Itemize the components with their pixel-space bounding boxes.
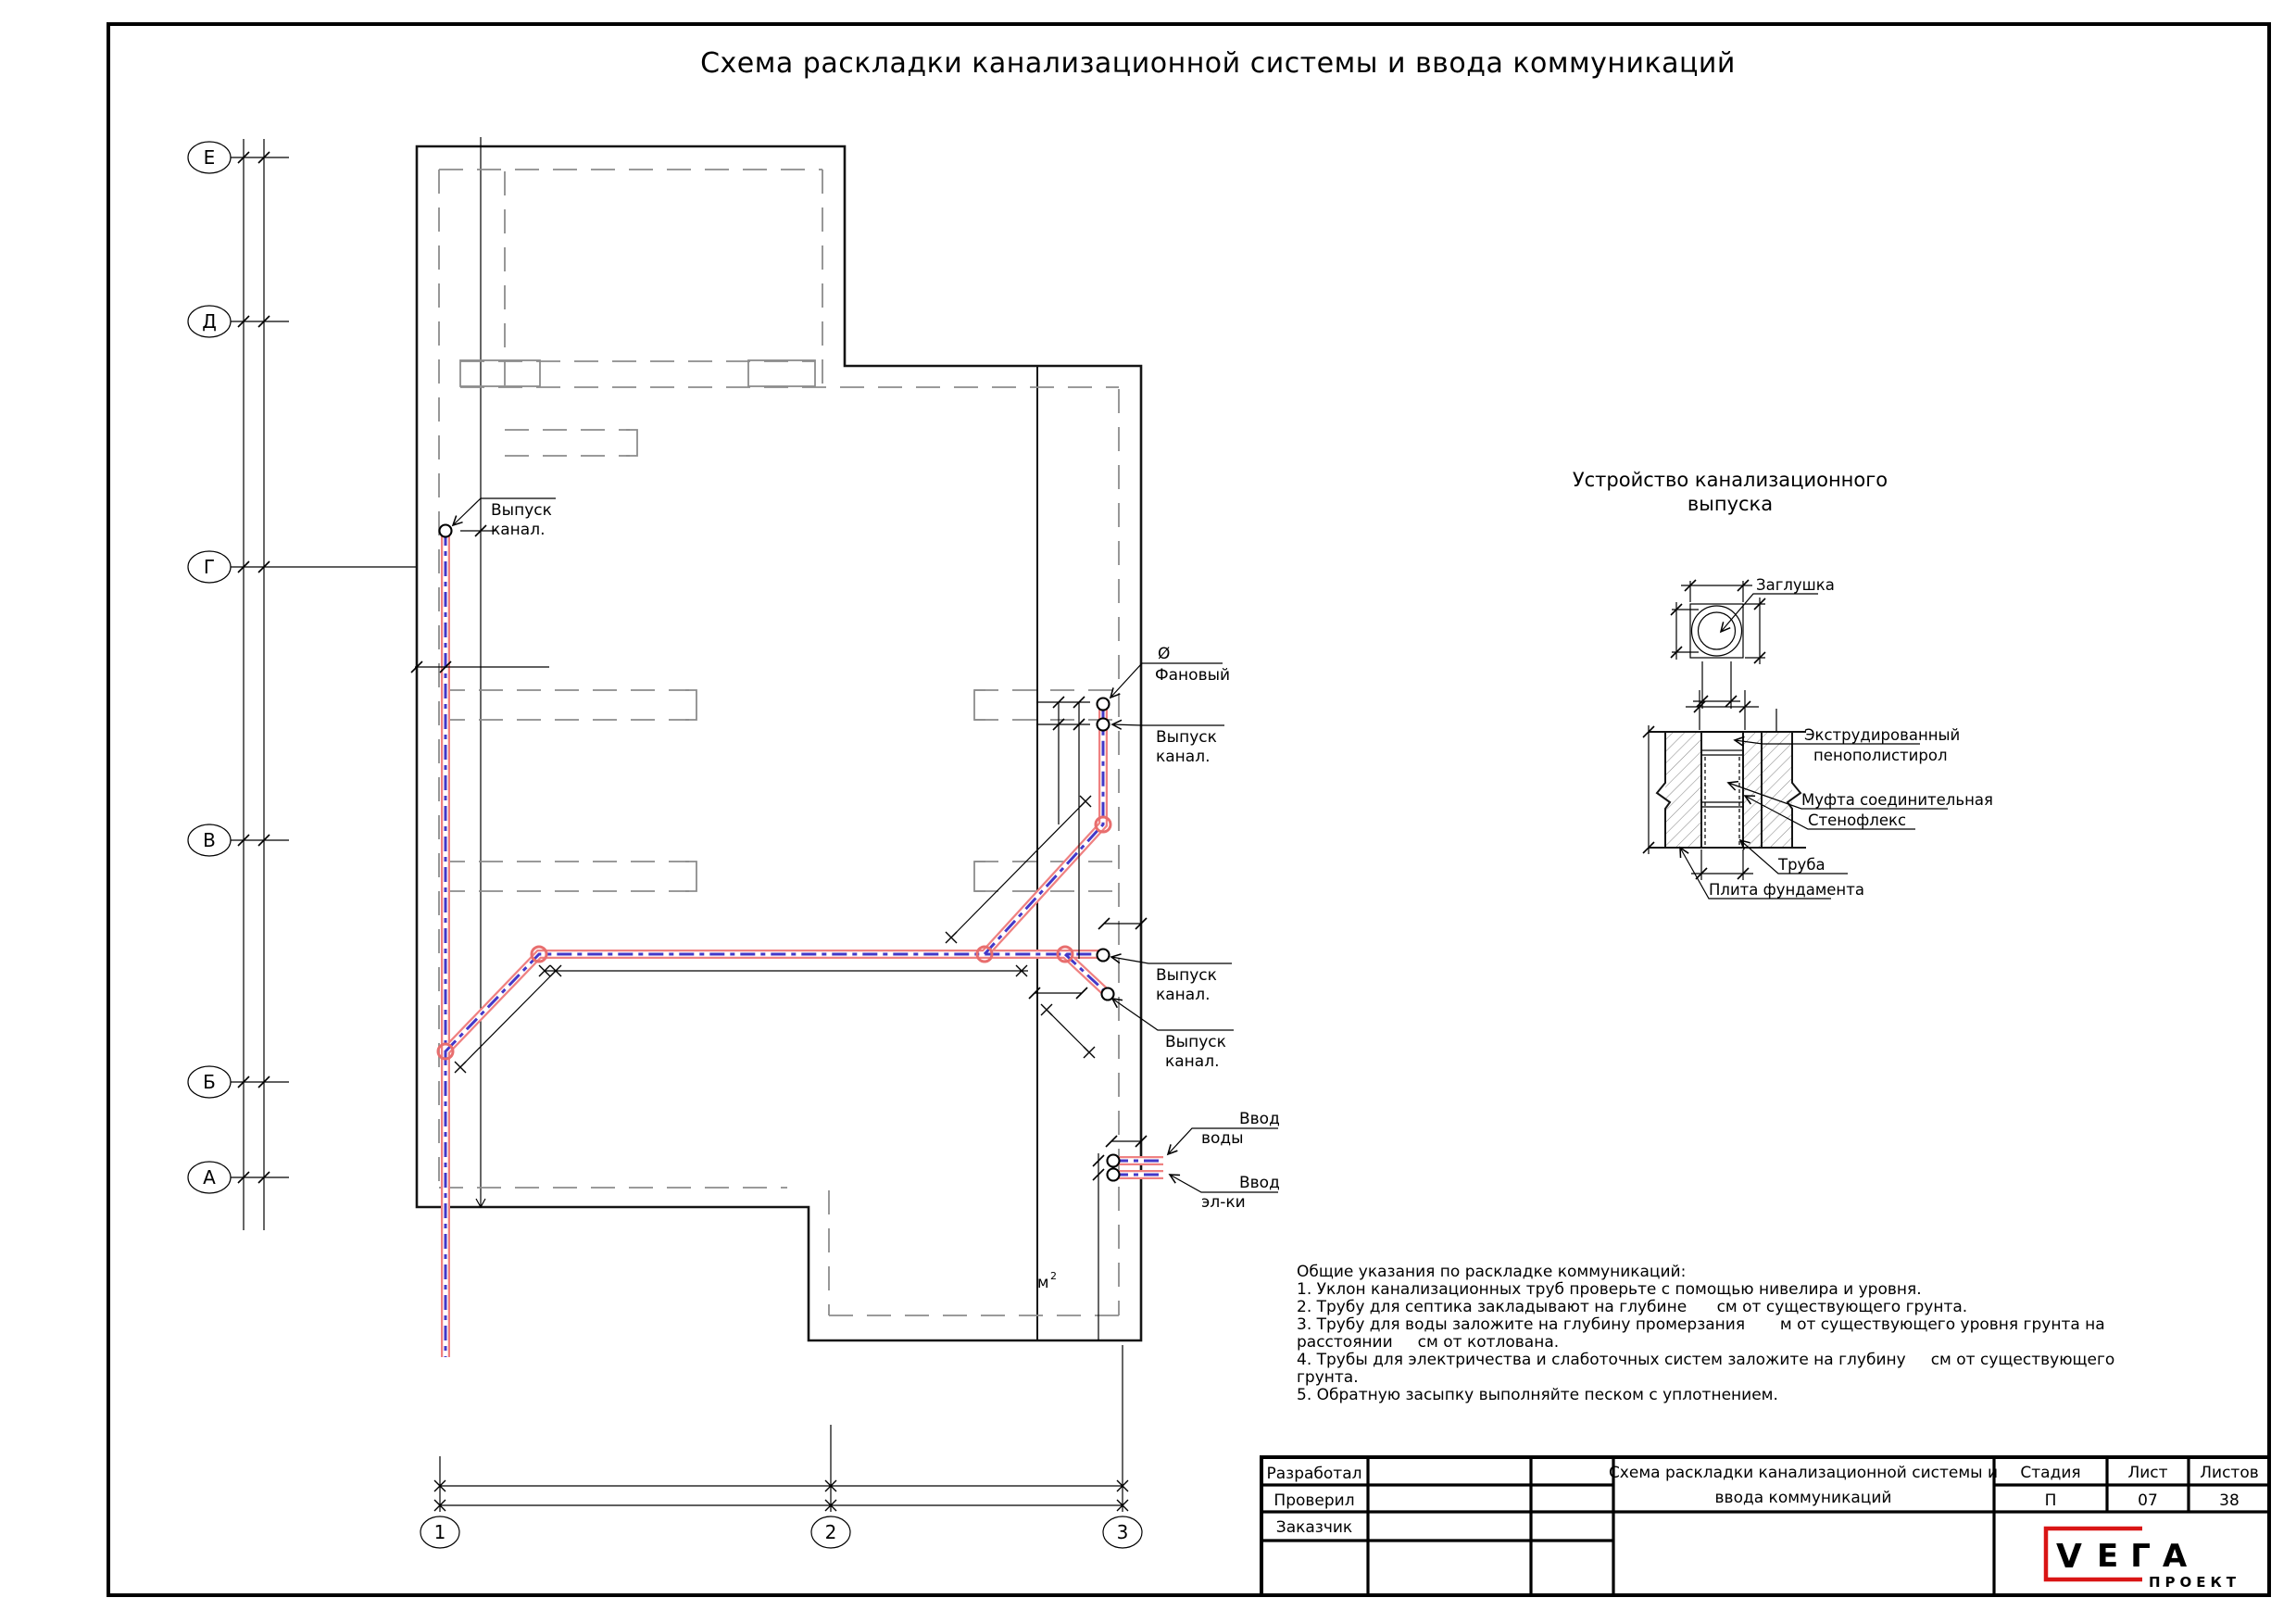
svg-text:Стенофлекс: Стенофлекс: [1808, 811, 1906, 829]
axis-row-B: Б: [188, 1066, 289, 1098]
axis-label: 3: [1117, 1521, 1129, 1543]
svg-text:Ввод: Ввод: [1239, 1174, 1280, 1192]
label-outlet-3: Выпуск канал.: [1111, 957, 1232, 1004]
titleblock-role-customer: Заказчик: [1276, 1518, 1352, 1537]
svg-text:расстоянии см от котлована: расстоянии см от котлована.: [1297, 1333, 1559, 1352]
titleblock-role-developed: Разработал: [1267, 1465, 1362, 1483]
drawing-canvas: Схема раскладки канализационной системы …: [0, 0, 2296, 1623]
svg-text:пенополистирол: пенополистирол: [1813, 747, 1948, 764]
axis-row-V: В: [188, 824, 289, 856]
floor-plan: [417, 137, 1141, 1340]
logo-name: ЕГА: [2097, 1538, 2199, 1575]
axis-columns: 1 2 3: [420, 1345, 1142, 1548]
insulation-strip: [1701, 732, 1743, 750]
stage-value: П: [2045, 1491, 2057, 1510]
detail-outlet-device: Устройство канализационного выпуска: [1573, 469, 1993, 899]
detail-title: выпуска: [1687, 493, 1773, 515]
foundation-dashed: [439, 170, 1119, 1315]
svg-text:м: м: [1037, 1274, 1048, 1291]
axis-row-E: Е: [188, 142, 289, 173]
drawing-sheet: Схема раскладки канализационной системы …: [0, 0, 2296, 1623]
opening-notch: [748, 360, 815, 386]
svg-text:канал.: канал.: [1156, 986, 1211, 1004]
svg-text:Фановый: Фановый: [1155, 666, 1230, 685]
svg-text:Экструдированный: Экструдированный: [1804, 726, 1960, 744]
svg-text:эл-ки: эл-ки: [1201, 1193, 1246, 1212]
slab-left: [1665, 732, 1701, 848]
svg-text:Выпуск: Выпуск: [1156, 728, 1217, 747]
label-outlet-2: Выпуск канал.: [1112, 724, 1224, 766]
general-notes: Общие указания по раскладке коммуникаций…: [1297, 1263, 2114, 1404]
label-electric-entry: Ввод эл-ки: [1170, 1174, 1280, 1212]
svg-text:Плита фундамента: Плита фундамента: [1709, 881, 1864, 899]
pipe-outline: [445, 531, 1163, 1357]
svg-text:грунта.: грунта.: [1297, 1368, 1359, 1387]
axis-label: В: [203, 829, 216, 851]
svg-text:Заглушка: Заглушка: [1756, 576, 1835, 594]
label-outlet-1: Выпуск канал.: [453, 498, 556, 539]
label-area: м 2: [1037, 1270, 1057, 1291]
title-block: Разработал Проверил Заказчик Схема раскл…: [1261, 1457, 2269, 1595]
logo-v: V: [2056, 1538, 2082, 1576]
svg-text:2: 2: [1050, 1270, 1057, 1282]
svg-text:Выпуск: Выпуск: [491, 501, 552, 520]
label-water-entry: Ввод воды: [1168, 1110, 1280, 1154]
vega-logo: V ЕГА ПРОЕКТ: [2046, 1529, 2240, 1591]
stage-header: Стадия: [2020, 1464, 2080, 1482]
titleblock-doc-title: Схема раскладки канализационной системы …: [1609, 1464, 1998, 1482]
axis-row-A: А: [188, 1162, 289, 1193]
svg-text:канал.: канал.: [1156, 748, 1211, 766]
svg-text:5. Обратную засыпку выполняйте: 5. Обратную засыпку выполняйте песком с …: [1297, 1386, 1778, 1404]
opening-notch: [460, 360, 540, 386]
plug-section-view: [1643, 690, 1806, 880]
axis-label: 1: [434, 1521, 446, 1543]
plan-dimensions: [411, 525, 1147, 1340]
svg-text:1. Уклон канализационных труб: 1. Уклон канализационных труб проверьте …: [1297, 1280, 1922, 1299]
logo-sub: ПРОЕКТ: [2149, 1574, 2240, 1591]
svg-text:Ввод: Ввод: [1239, 1110, 1280, 1128]
axis-label: Б: [203, 1071, 216, 1093]
detail-title: Устройство канализационного: [1573, 469, 1888, 491]
axis-row-D: Д: [188, 306, 289, 337]
svg-text:4. Трубы для электричества и с: 4. Трубы для электричества и слаботочных…: [1297, 1351, 2114, 1369]
grid-axes: Е Д Г В Б А: [188, 139, 1142, 1548]
sheet-header: Лист: [2127, 1464, 2167, 1482]
building-outline: [417, 146, 1141, 1340]
axis-label: А: [203, 1166, 216, 1189]
svg-text:Муфта соединительная: Муфта соединительная: [1801, 791, 1993, 809]
svg-text:3. Трубу для воды заложите на: 3. Трубу для воды заложите на глубину пр…: [1297, 1315, 2105, 1334]
plug-plan-view: Заглушка: [1671, 576, 1835, 709]
axis-row-G: Г: [188, 551, 417, 583]
page-title: Схема раскладки канализационной системы …: [700, 47, 1736, 80]
label-vent: Ø Фановый: [1110, 645, 1230, 698]
svg-text:Выпуск: Выпуск: [1156, 966, 1217, 985]
sheets-value: 38: [2219, 1491, 2240, 1510]
pipe-core: [445, 531, 1163, 1357]
sheets-header: Листов: [2200, 1464, 2259, 1482]
svg-text:Выпуск: Выпуск: [1165, 1033, 1226, 1051]
svg-text:2. Трубу для септика закладыва: 2. Трубу для септика закладывают на глуб…: [1297, 1298, 1967, 1316]
label-outlet-4: Выпуск канал.: [1112, 999, 1234, 1071]
titleblock-role-checked: Проверил: [1273, 1491, 1354, 1510]
slab-right: [1743, 732, 1792, 848]
titleblock-doc-title: ввода коммуникаций: [1715, 1489, 1892, 1507]
axis-label: Г: [204, 556, 215, 578]
pipe-fittings: [438, 817, 1110, 1059]
sheet-value: 07: [2138, 1491, 2158, 1510]
svg-text:воды: воды: [1201, 1129, 1244, 1148]
svg-text:канал.: канал.: [1165, 1052, 1220, 1071]
svg-text:Ø: Ø: [1158, 645, 1170, 663]
svg-text:Общие указания по раскладке ко: Общие указания по раскладке коммуникаций…: [1297, 1263, 1686, 1281]
svg-text:канал.: канал.: [491, 521, 546, 539]
axis-label: Е: [204, 146, 216, 169]
axis-label: Д: [202, 310, 217, 333]
svg-text:Труба: Труба: [1777, 856, 1826, 874]
axis-label: 2: [825, 1521, 837, 1543]
section-labels: Экструдированный пенополистирол Муфта со…: [1680, 726, 1993, 899]
sewage-pipes: [438, 525, 1163, 1358]
pipe-outlets: [440, 525, 1120, 1181]
